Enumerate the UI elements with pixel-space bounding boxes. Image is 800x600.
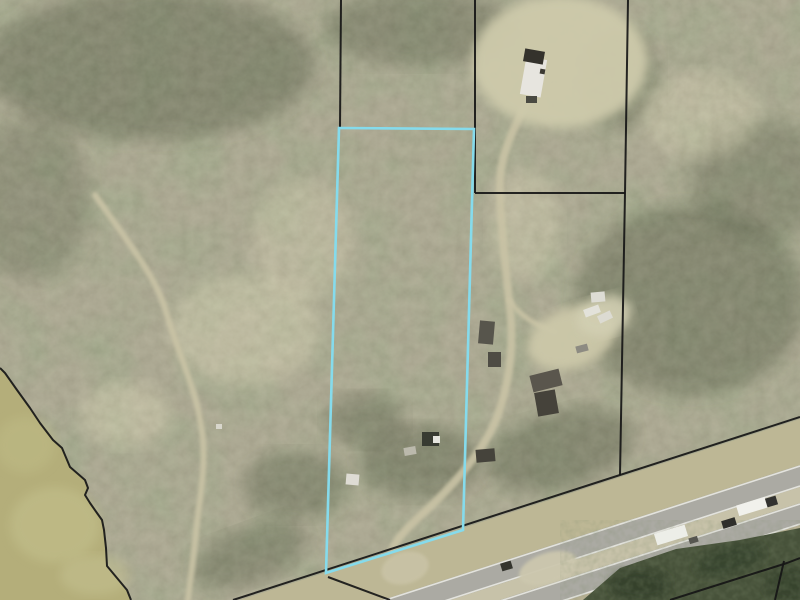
- parcel-shed-white: [433, 436, 440, 443]
- yard-vehicle: [526, 96, 537, 103]
- trail-object: [216, 424, 222, 429]
- house-a: [478, 320, 495, 344]
- house-c: [534, 389, 559, 416]
- aerial-parcel-photo: [0, 0, 800, 600]
- shed-south: [475, 448, 495, 463]
- parcel-line-north-a: [340, 0, 341, 127]
- house-a-annex: [488, 352, 501, 367]
- pond-shallow-2: [60, 555, 130, 595]
- map-canvas: [0, 0, 800, 600]
- parcel-shed-2: [346, 473, 360, 485]
- barn-vent: [540, 69, 546, 75]
- rv-white: [591, 291, 606, 302]
- homestead-clearing: [472, 0, 648, 128]
